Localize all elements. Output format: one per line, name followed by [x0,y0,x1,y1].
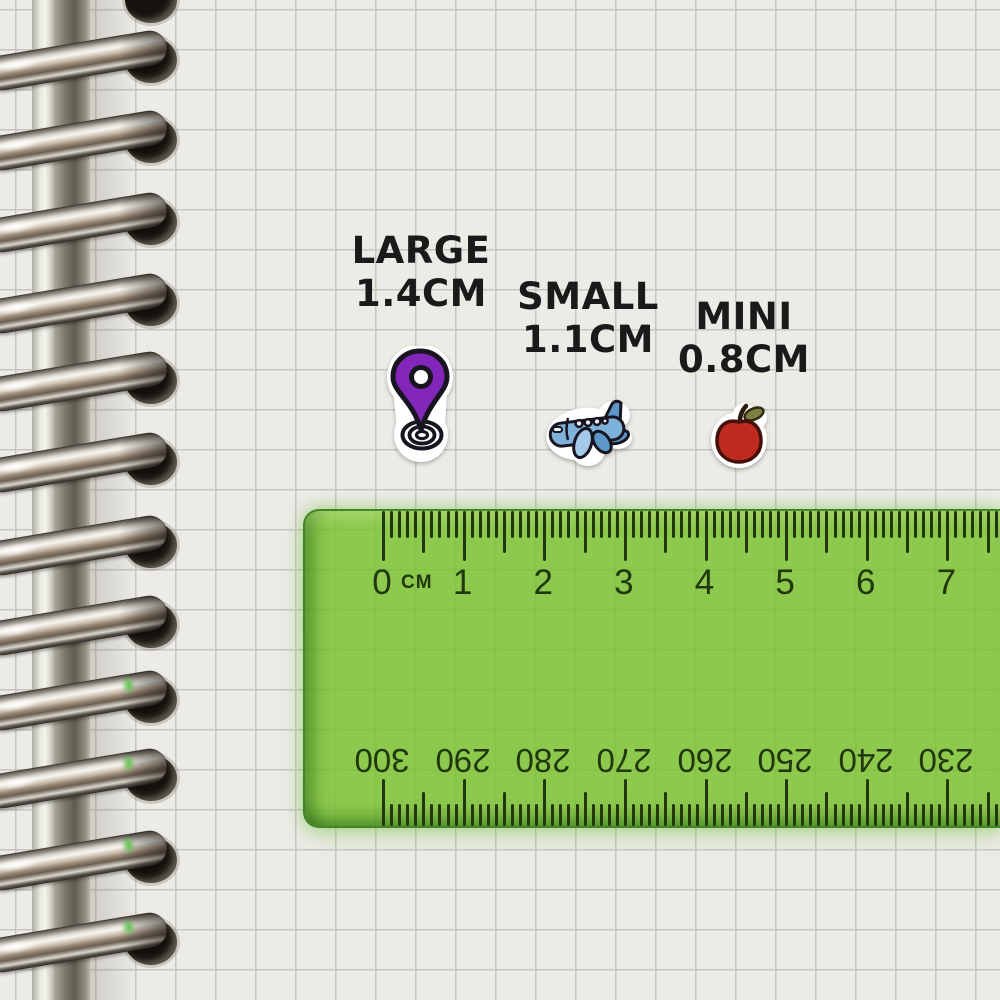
ruler-tick [680,511,683,538]
pin-center-dot [412,368,431,387]
ruler-tick [898,804,901,826]
ruler-tick [995,804,998,826]
ruler-tick [382,779,385,826]
ruler-unit-label: CM [401,572,433,594]
ruler-tick [463,779,466,826]
ruler-tick [584,511,587,553]
ruler-tick [487,804,490,826]
ruler-tick [430,804,433,826]
ruler-number: 3 [602,563,646,603]
ruler-number: 0 [360,563,404,603]
ruler-tick [616,511,619,538]
ruler-tick [447,804,450,826]
ruler-tick [874,804,877,826]
ruler-tick [648,804,651,826]
ruler-tick [801,511,804,538]
ruler-tick [914,804,917,826]
ruler-tick [471,511,474,538]
ruler-tick [455,511,458,538]
ruler-tick [576,804,579,826]
ruler-tick [471,804,474,826]
ruler-tick [946,779,949,826]
ruler-tick [721,511,724,538]
ruler-tick [592,804,595,826]
ruler-tick [785,511,788,561]
ruler-tick [954,511,957,538]
ruler-number: 1 [441,563,485,603]
ruler-tick [503,792,506,826]
ruler-tick [624,511,627,561]
ruler-tick [809,804,812,826]
ruler-tick [414,511,417,538]
ruler-tick [406,804,409,826]
ruler-tick [866,511,869,561]
ruler-tick [527,804,530,826]
airplane-sticker [544,396,634,472]
ruler-reflection [121,753,137,773]
ruler-number: 230 [916,741,976,779]
ruler-tick [543,779,546,826]
ruler-tick [535,804,538,826]
ruler-tick [519,804,522,826]
ruler-tick [858,804,861,826]
ruler-tick [680,804,683,826]
ruler-number: 260 [675,741,735,779]
ruler-tick [487,511,490,538]
ruler-tick [825,792,828,826]
ruler-tick [632,511,635,538]
ruler-tick [640,511,643,538]
ruler-tick [987,792,990,826]
ruler-tick [447,511,450,538]
ruler-tick [995,511,998,538]
ruler-tick [922,511,925,538]
ruler-tick [858,511,861,538]
ruler-tick [842,511,845,538]
apple-sticker [704,398,774,472]
ruler-tick [963,804,966,826]
ruler-tick [463,511,466,561]
ruler-tick [551,804,554,826]
ruler-tick [382,511,385,561]
ruler-tick [761,804,764,826]
ruler-reflection [121,835,137,855]
ruler-tick [608,804,611,826]
ruler-tick [696,804,699,826]
ruler-tick [745,792,748,826]
ruler-tick [761,511,764,538]
ruler-tick [390,511,393,538]
ruler-tick [890,804,893,826]
ruler-tick [696,511,699,538]
ruler-number: 300 [352,741,412,779]
map-pin-icon [384,346,456,466]
ruler-tick [930,511,933,538]
ruler-tick [850,511,853,538]
ruler-tick [729,804,732,826]
ruler-number: 7 [924,563,968,603]
ruler-tick [971,511,974,538]
ruler-tick [914,511,917,538]
ruler-tick [834,511,837,538]
ruler-tick [600,511,603,538]
ruler-tick [882,511,885,538]
ruler-tick [600,804,603,826]
ruler-tick [793,804,796,826]
ruler-tick [954,804,957,826]
ruler-tick [584,792,587,826]
ruler-tick [616,804,619,826]
ruler-tick [503,511,506,553]
ruler-tick [906,511,909,553]
ruler-tick [406,511,409,538]
ruler-tick [495,804,498,826]
ruler-reflection [121,675,137,695]
location-pin-sticker [384,346,456,470]
ruler-tick [769,511,772,538]
ruler-tick [809,511,812,538]
ruler-tick [648,511,651,538]
ruler-tick [543,511,546,561]
ruler-tick [922,804,925,826]
ruler-tick [825,511,828,553]
label-mini-name: MINI [634,295,854,338]
ruler-tick [688,511,691,538]
ruler-reflection [121,917,137,937]
ruler-tick [898,511,901,538]
ruler-tick [390,804,393,826]
ruler-tick [608,511,611,538]
ruler-tick [495,511,498,538]
ruler-tick [527,511,530,538]
ruler-tick [624,779,627,826]
ruler-tick [656,511,659,538]
ruler-number: 2 [521,563,565,603]
label-mini: MINI 0.8CM [634,295,854,381]
ruler-tick [785,779,788,826]
ruler-tick [398,511,401,538]
nose-window [553,427,562,432]
ruler-tick [753,804,756,826]
ruler-tick [664,792,667,826]
ruler-tick [890,511,893,538]
ruler-tick [511,511,514,538]
ruler-number: 6 [844,563,888,603]
ruler-tick [632,804,635,826]
ruler-tick [438,804,441,826]
ruler-tick [479,804,482,826]
ruler-tick [817,804,820,826]
ruler-number: 250 [755,741,815,779]
ruler-tick [801,804,804,826]
apple-icon [704,398,774,468]
ruler-tick [817,511,820,538]
ruler-tick [737,511,740,538]
ruler-tick [422,792,425,826]
ruler-tick [777,804,780,826]
ruler-tick [688,804,691,826]
ruler-tick [592,511,595,538]
ruler-tick [753,511,756,538]
ruler-tick [664,511,667,553]
ruler-tick [576,511,579,538]
ruler-tick [979,804,982,826]
ruler-number: 4 [683,563,727,603]
ruler-tick [882,804,885,826]
ruler-tick [777,511,780,538]
ruler-tick [729,511,732,538]
ruler-tick [930,804,933,826]
ruler-number: 270 [594,741,654,779]
ruler-tick [455,804,458,826]
ruler-number: 290 [433,741,493,779]
ruler-tick [938,804,941,826]
ruler-tick [656,804,659,826]
ruler-number: 280 [513,741,573,779]
ruler-number: 240 [836,741,896,779]
ruler-tick [979,511,982,538]
ruler-tick [842,804,845,826]
ruler-tick [398,804,401,826]
ruler-tick [963,511,966,538]
ruler-tick [987,511,990,553]
ruler-tick [672,804,675,826]
ruler-tick [422,511,425,553]
ruler-tick [769,804,772,826]
ruler-tick [559,511,562,538]
ruler-tick [745,511,748,553]
ruler-tick [866,779,869,826]
ruler-tick [479,511,482,538]
ruler-tick [850,804,853,826]
ruler-tick [705,511,708,561]
ruler-tick [559,804,562,826]
ruler-tick [713,804,716,826]
ruler-tick [567,804,570,826]
apple-body [717,421,761,462]
ruler-tick [721,804,724,826]
airplane-icon [544,396,634,468]
ruler-tick [906,792,909,826]
ruler-tick [938,511,941,538]
ruler-tick [946,511,949,561]
ruler-number: 5 [763,563,807,603]
ruler-tick [414,804,417,826]
ruler-tick [971,804,974,826]
label-large-name: LARGE [311,229,531,272]
ruler-tick [834,804,837,826]
ruler-tick [737,804,740,826]
ruler-tick [713,511,716,538]
ruler-tick [567,511,570,538]
notebook-photo: LARGE 1.4CM SMALL 1.1CM MINI 0.8CM [0,0,1000,1000]
ruler-tick [640,804,643,826]
ruler-tick [519,511,522,538]
ruler-tick [430,511,433,538]
ruler-tick [551,511,554,538]
ruler: 01234567 CM 300290280270260250240230 [303,509,1000,828]
label-mini-size: 0.8CM [634,338,854,381]
ruler-tick [511,804,514,826]
ruler-tick [672,511,675,538]
ruler-tick [793,511,796,538]
ruler-tick [874,511,877,538]
ruler-tick [535,511,538,538]
ruler-tick [438,511,441,538]
ruler-tick [705,779,708,826]
